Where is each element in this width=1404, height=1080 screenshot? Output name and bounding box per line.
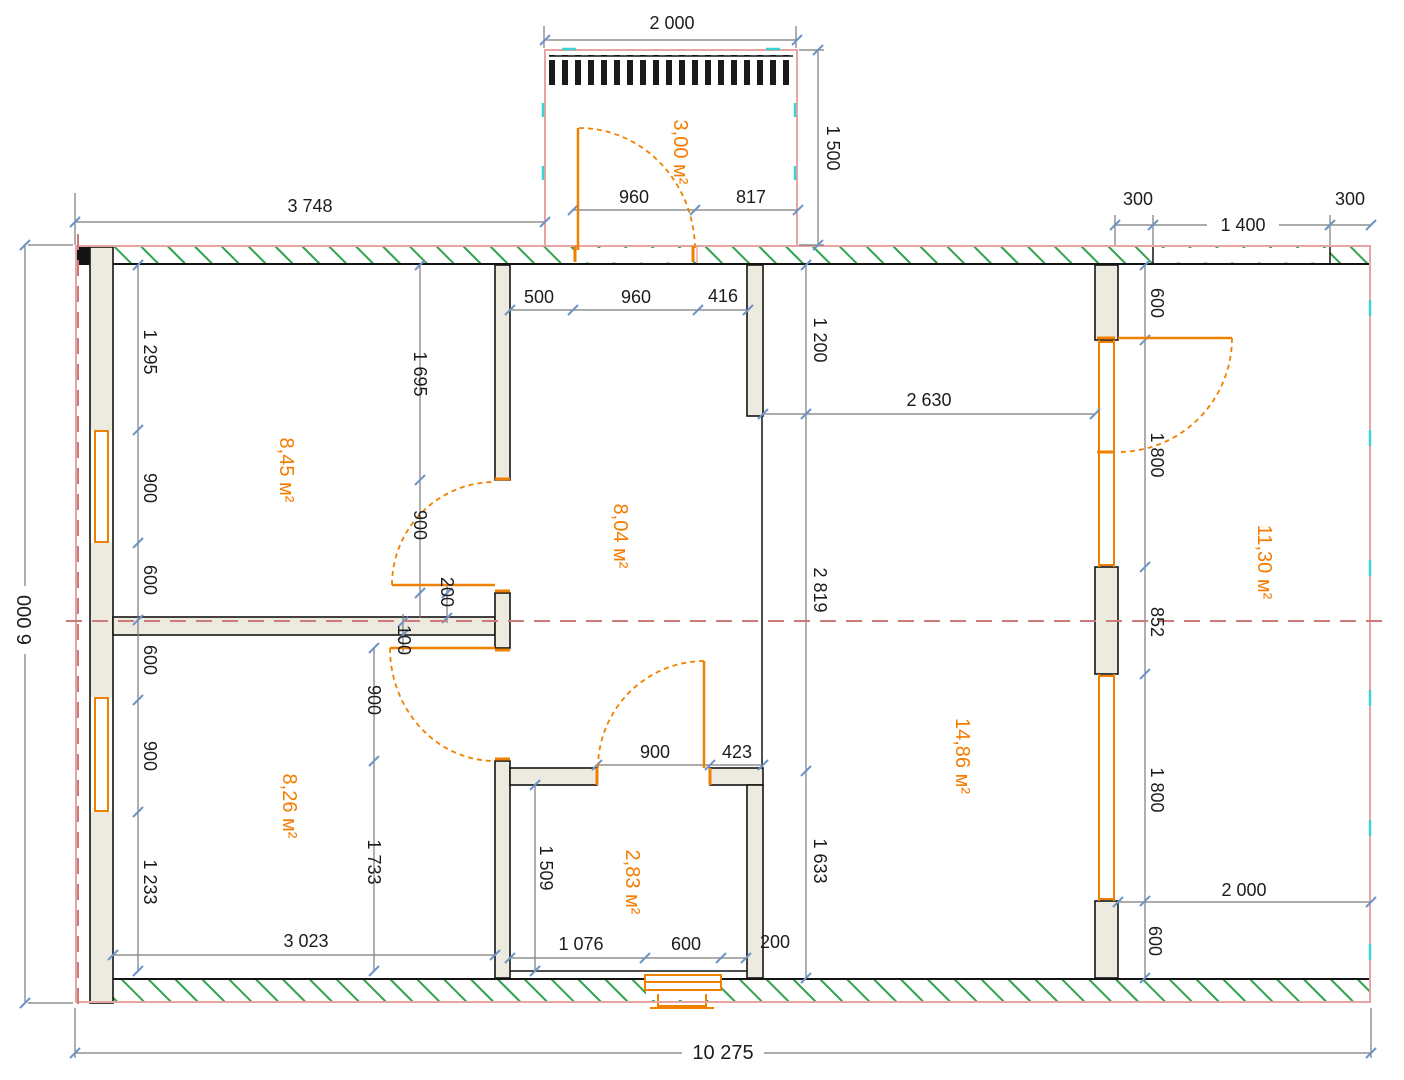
floor-plan-drawing: 2 000 3 748 960 817 300 1 400 300 500 96…	[0, 0, 1404, 1080]
windows	[91, 340, 1114, 1008]
area-label-living: 14,86 м²	[951, 718, 973, 794]
area-label-room-bottom-left: 8,26 м²	[278, 774, 300, 839]
dim-bath-423: 423	[722, 742, 752, 762]
label-backgrounds	[13, 217, 1279, 1063]
dim-porch-width: 2 000	[649, 13, 694, 33]
dim-hall-960: 960	[621, 287, 651, 307]
hall-wall-stub	[747, 265, 763, 416]
dim-bath-1509: 1 509	[536, 845, 556, 890]
dim-living-2630: 2 630	[906, 390, 951, 410]
dim-bath-door-900: 900	[640, 742, 670, 762]
dim-porch-depth: 1 500	[823, 125, 843, 170]
dim-bath-600: 600	[671, 934, 701, 954]
dim-porch-side: 817	[736, 187, 766, 207]
dimension-lines	[25, 26, 1371, 1058]
bath-wall-top-right	[710, 768, 763, 785]
dim-living-1633: 1 633	[810, 838, 830, 883]
dim-lw-600b: 600	[140, 645, 160, 675]
walls	[90, 247, 1118, 1003]
glazed-partition-pier-top	[1095, 265, 1118, 340]
dim-mid-900b: 900	[364, 685, 384, 715]
dim-r-1800b: 1 800	[1147, 767, 1167, 812]
area-label-porch: 3,00 м²	[669, 120, 691, 185]
dim-overall-height: 6 000	[14, 595, 36, 645]
cyan-axis-marks	[543, 49, 1370, 960]
area-label-room-top-left: 8,45 м²	[275, 438, 297, 503]
dim-porch-door: 960	[619, 187, 649, 207]
dim-living-2819: 2 819	[810, 567, 830, 612]
door-swing-room-bl	[390, 648, 495, 761]
dimension-labels-horizontal: 2 000 3 748 960 817 300 1 400 300 500 96…	[283, 13, 1365, 1064]
dim-overall-width: 10 275	[692, 1042, 753, 1064]
area-label-hall: 8,04 м²	[609, 504, 631, 569]
area-label-bath: 2,83 м²	[621, 850, 643, 915]
entrance-door-opening	[575, 248, 693, 263]
doors	[390, 128, 1232, 785]
dim-br-600: 600	[1145, 926, 1165, 956]
dim-mid-100: 100	[394, 625, 414, 655]
dim-lw-1233: 1 233	[140, 859, 160, 904]
dim-mid-900a: 900	[410, 510, 430, 540]
partition-wall-top	[495, 265, 510, 480]
top-right-window-opening	[1154, 248, 1330, 263]
door-swing-room-right	[1118, 338, 1232, 452]
dimension-ticks	[20, 35, 1376, 1058]
glazed-partition-window-2	[1099, 674, 1114, 901]
left-exterior-wall	[90, 247, 113, 1003]
dim-left-top: 3 748	[287, 196, 332, 216]
door-swing-room-tl	[392, 482, 495, 585]
partition-wall-bottom	[495, 761, 510, 978]
dim-r-852: 852	[1147, 607, 1167, 637]
dim-stub-1200: 1 200	[810, 317, 830, 362]
dim-mid-200: 200	[437, 577, 457, 607]
dim-r-600a: 600	[1147, 288, 1167, 318]
dim-tr-1400: 1 400	[1220, 215, 1265, 235]
dim-hall-416: 416	[708, 286, 738, 306]
dim-bath-200: 200	[760, 932, 790, 952]
dim-lw-900b: 900	[140, 741, 160, 771]
dim-br-2000: 2 000	[1221, 880, 1266, 900]
dim-hall-500: 500	[524, 287, 554, 307]
dim-tr-300a: 300	[1123, 189, 1153, 209]
dim-lw-900a: 900	[140, 473, 160, 503]
dim-bl-3023: 3 023	[283, 931, 328, 951]
porch-steps	[549, 55, 793, 85]
glazed-partition-pier-bottom	[1095, 901, 1118, 978]
floor-plan-canvas: 2 000 3 748 960 817 300 1 400 300 500 96…	[0, 0, 1404, 1080]
bath-wall-top-left	[510, 768, 597, 785]
dim-mid-1733: 1 733	[364, 839, 384, 884]
door-jambs	[495, 246, 1115, 785]
mid-horizontal-wall	[113, 617, 495, 635]
area-label-room-right: 11,30 м²	[1253, 525, 1275, 600]
dim-lw-600a: 600	[140, 565, 160, 595]
dim-bath-1076: 1 076	[558, 934, 603, 954]
axis-lines	[66, 234, 1382, 1010]
dim-tr-300b: 300	[1335, 189, 1365, 209]
dim-lw-1295: 1 295	[140, 329, 160, 374]
dim-r-1800a: 1 800	[1147, 432, 1167, 477]
dim-mid-1695: 1 695	[410, 351, 430, 396]
